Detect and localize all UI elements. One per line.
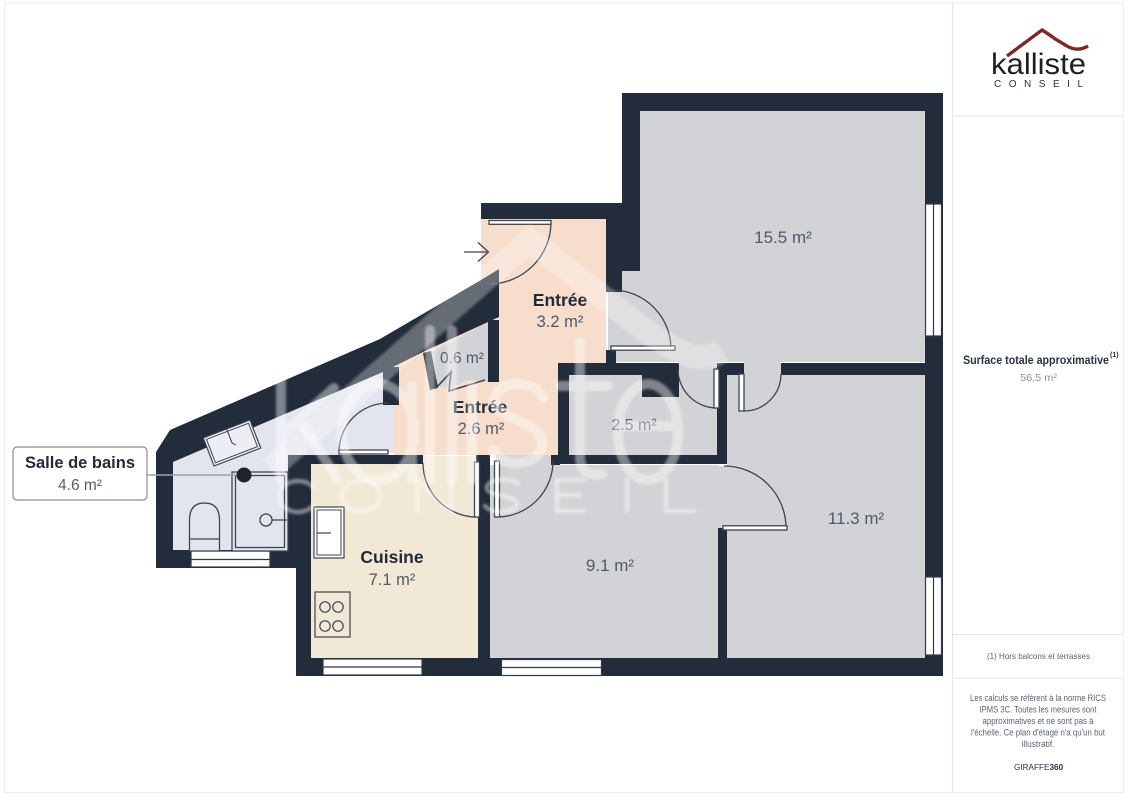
svg-text:(1) Hors balcons et terrasses: (1) Hors balcons et terrasses <box>987 651 1090 661</box>
svg-text:3.2 m²: 3.2 m² <box>537 313 584 331</box>
svg-text:4.6 m²: 4.6 m² <box>58 477 102 494</box>
svg-text:11.3 m²: 11.3 m² <box>828 509 885 528</box>
svg-text:Les calculs se réfèrent à la n: Les calculs se réfèrent à la norme RICS <box>970 693 1106 703</box>
svg-text:9.1 m²: 9.1 m² <box>586 556 635 575</box>
svg-text:illustratif.: illustratif. <box>1022 739 1055 749</box>
svg-text:approximatives et ne sont pas: approximatives et ne sont pas à <box>983 716 1094 726</box>
svg-text:2.6 m²: 2.6 m² <box>458 420 505 438</box>
svg-text:kalliste: kalliste <box>991 48 1086 81</box>
svg-text:15.5 m²: 15.5 m² <box>754 228 812 247</box>
svg-text:0.6 m²: 0.6 m² <box>440 350 484 367</box>
svg-text:(1): (1) <box>1110 352 1119 359</box>
svg-text:IPMS 3C. Toutes les mesures so: IPMS 3C. Toutes les mesures sont <box>980 705 1097 715</box>
svg-text:7.1 m²: 7.1 m² <box>369 571 416 589</box>
svg-text:GIRAFFE360: GIRAFFE360 <box>1014 763 1064 772</box>
svg-text:Salle de bains: Salle de bains <box>25 454 135 472</box>
svg-text:56,5 m²: 56,5 m² <box>1020 372 1058 384</box>
svg-text:l'échelle. Ce plan d'étage n'a: l'échelle. Ce plan d'étage n'a qu'un but <box>971 728 1105 738</box>
svg-text:Cuisine: Cuisine <box>360 547 423 567</box>
svg-text:Surface totale approximative: Surface totale approximative <box>963 353 1109 367</box>
